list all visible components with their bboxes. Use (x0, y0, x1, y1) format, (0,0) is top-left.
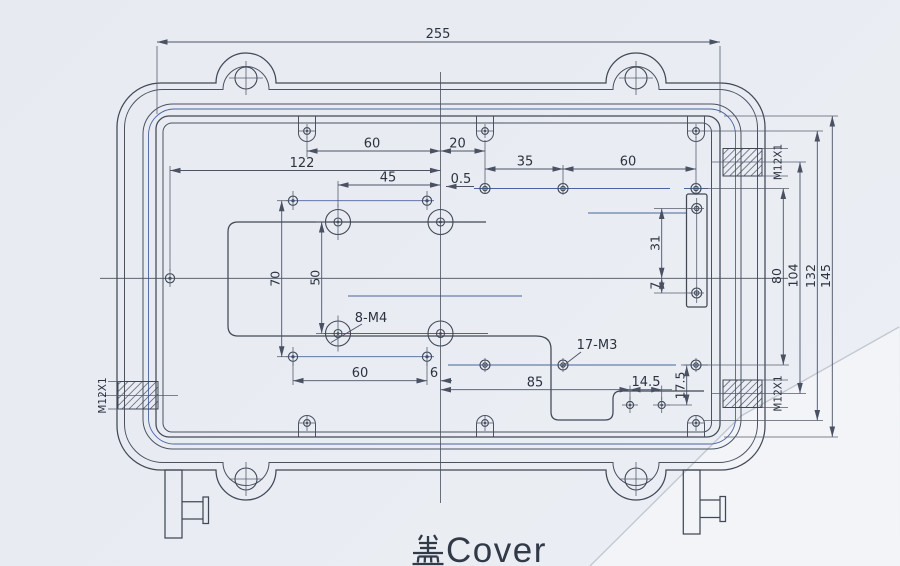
dim-80: 80 (769, 268, 784, 284)
label-8-m4: 8-M4 (355, 311, 387, 326)
dimension-texts: 255 60 20 122 35 60 45 0.5 8-M4 17-M3 60… (97, 27, 833, 414)
boss-plate-and-step (228, 222, 704, 420)
dim-0-5: 0.5 (451, 172, 472, 187)
thread-label-top-right: M12X1 (773, 144, 785, 180)
dimension-lines (157, 42, 832, 437)
thread-label-left: M12X1 (97, 377, 109, 413)
dim-14-5: 14.5 (632, 375, 661, 390)
cover-outline (117, 53, 765, 500)
dim-7: 7 (648, 282, 663, 290)
dim-104: 104 (786, 264, 801, 288)
dim-50: 50 (308, 270, 323, 286)
dim-top-left-60: 60 (364, 137, 381, 152)
dim-85: 85 (527, 376, 544, 391)
label-17-m3: 17-M3 (577, 338, 618, 353)
dim-17-5: 17.5 (673, 372, 688, 400)
paper-fold-region (590, 327, 900, 566)
dim-122: 122 (290, 156, 315, 171)
dim-bottom-60: 60 (352, 366, 369, 381)
dim-total-width: 255 (426, 27, 451, 42)
dim-mid-60: 60 (620, 155, 637, 170)
bottom-left-pin (165, 470, 209, 538)
dim-top-20: 20 (449, 137, 466, 152)
dim-45: 45 (380, 171, 397, 186)
thread-label-bottom-right: M12X1 (773, 375, 785, 411)
dim-70: 70 (268, 271, 283, 287)
gasket-groove (149, 109, 736, 444)
drawing-caption: Cover (413, 531, 547, 566)
dim-6: 6 (430, 366, 438, 381)
dim-35: 35 (517, 155, 534, 170)
dim-132: 132 (803, 264, 818, 288)
centerlines (100, 72, 788, 503)
flange-inner-edge (143, 104, 741, 449)
dim-31: 31 (648, 235, 663, 251)
m4-tapped-bosses (326, 210, 454, 347)
thread-holes (100, 149, 806, 410)
dim-145: 145 (818, 264, 833, 288)
cjk-gai-glyph (413, 535, 444, 564)
scanned-drawing-sheet: 255 60 20 122 35 60 45 0.5 8-M4 17-M3 60… (0, 0, 900, 566)
cover-engineering-drawing: 255 60 20 122 35 60 45 0.5 8-M4 17-M3 60… (0, 0, 900, 566)
caption-text: Cover (446, 531, 547, 566)
